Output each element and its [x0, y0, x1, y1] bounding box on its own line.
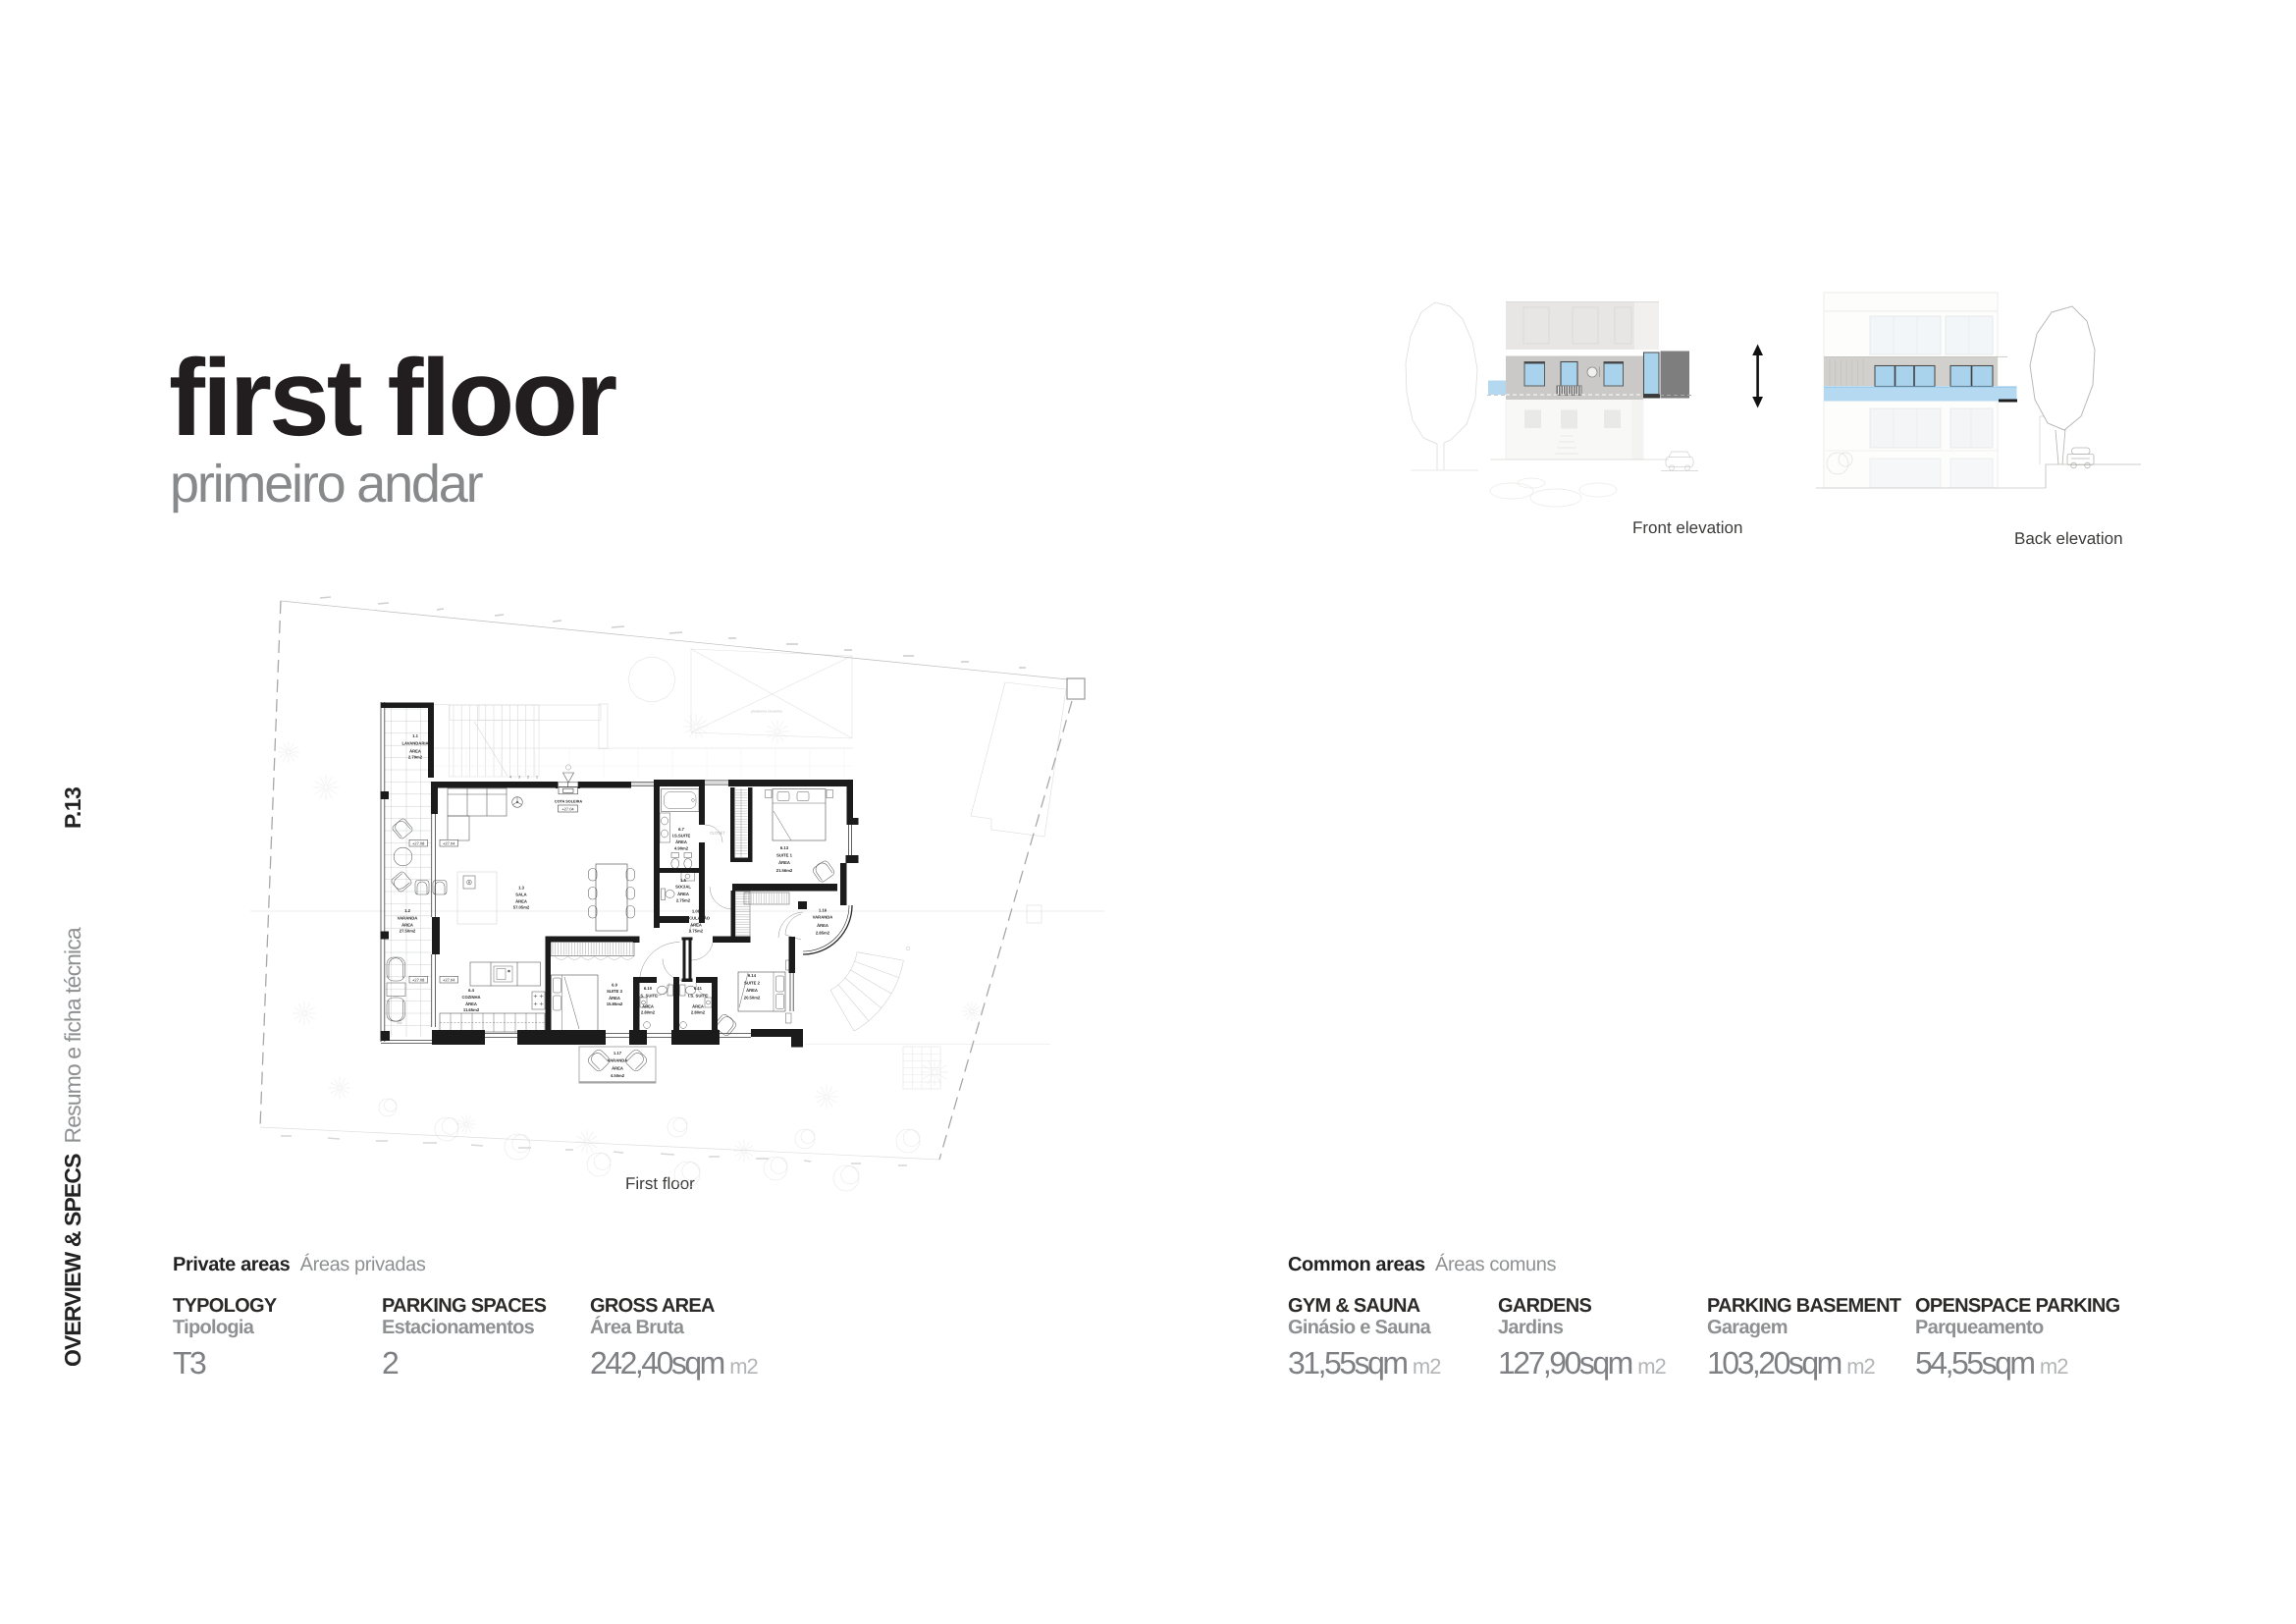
svg-text:6.11: 6.11	[694, 986, 703, 991]
svg-text:I.S.SUITE: I.S.SUITE	[672, 834, 691, 839]
svg-text:ÁREA: ÁREA	[675, 839, 687, 844]
svg-text:6.9: 6.9	[612, 983, 617, 988]
svg-text:I.S. SUITE: I.S. SUITE	[638, 994, 658, 999]
svg-text:11.65m2: 11.65m2	[463, 1007, 480, 1012]
svg-text:ÁREA: ÁREA	[746, 988, 758, 993]
svg-text:COZINHA: COZINHA	[461, 995, 480, 1000]
svg-text:4.50m2: 4.50m2	[611, 1073, 625, 1078]
svg-text:ÁREA: ÁREA	[401, 923, 413, 928]
svg-text:2.80m2: 2.80m2	[691, 1010, 706, 1015]
svg-text:ÁREA: ÁREA	[778, 860, 790, 865]
svg-text:+27.04: +27.04	[443, 977, 455, 982]
svg-text:SUITE 1: SUITE 1	[776, 853, 792, 858]
svg-text:2.85m2: 2.85m2	[816, 931, 830, 936]
svg-text:COTA SOLEIRA: COTA SOLEIRA	[555, 800, 583, 804]
svg-text:SALA: SALA	[515, 893, 526, 897]
svg-text:1.2: 1.2	[404, 908, 410, 913]
svg-text:SOCIAL: SOCIAL	[675, 885, 691, 890]
svg-text:2.80m2: 2.80m2	[641, 1010, 656, 1015]
svg-text:4 3 2 1: 4 3 2 1	[509, 776, 541, 780]
svg-text:CIRCULAÇÃO: CIRCULAÇÃO	[682, 916, 711, 921]
svg-text:ÁREA: ÁREA	[690, 923, 702, 928]
svg-text:SUITE 2: SUITE 2	[744, 981, 760, 986]
svg-text:1.3: 1.3	[518, 886, 524, 891]
svg-text:ÁREA: ÁREA	[515, 899, 527, 904]
svg-text:2.79m2: 2.79m2	[408, 755, 423, 760]
svg-text:292: 292	[397, 1021, 402, 1025]
svg-text:3.75m2: 3.75m2	[689, 929, 704, 934]
svg-text:ÁREA: ÁREA	[817, 923, 828, 928]
svg-text:ÁREA: ÁREA	[609, 996, 620, 1001]
svg-text:ÁREA: ÁREA	[409, 749, 421, 754]
svg-text:ÁREA: ÁREA	[612, 1066, 623, 1071]
svg-text:VARANDA: VARANDA	[398, 916, 418, 921]
svg-text:+27.04: +27.04	[561, 807, 574, 812]
svg-text:plataforma elevatória: plataforma elevatória	[751, 710, 782, 714]
svg-text:27.50m2: 27.50m2	[400, 929, 416, 934]
svg-text:57.05m2: 57.05m2	[513, 905, 530, 910]
svg-text:+27.08: +27.08	[412, 977, 425, 982]
svg-text:6.13: 6.13	[780, 845, 789, 850]
svg-text:1.17: 1.17	[614, 1051, 622, 1056]
svg-text:LAVANDARIA: LAVANDARIA	[401, 741, 428, 746]
svg-text:ÁREA: ÁREA	[465, 1001, 477, 1006]
svg-text:6.4: 6.4	[468, 988, 474, 993]
svg-text:I.S. SUITE: I.S. SUITE	[688, 994, 708, 999]
svg-text:4.90m2: 4.90m2	[674, 846, 689, 851]
svg-text:20.50m2: 20.50m2	[744, 996, 761, 1001]
svg-text:1.5: 1.5	[680, 878, 686, 883]
svg-text:VARANDA: VARANDA	[813, 915, 833, 920]
svg-text:9.14: 9.14	[748, 973, 757, 978]
svg-text:6.10: 6.10	[644, 986, 653, 991]
svg-text:CLOSET: CLOSET	[710, 832, 725, 836]
svg-text:+27.04: +27.04	[443, 840, 455, 845]
svg-text:1.16: 1.16	[819, 908, 828, 913]
svg-text:6.7: 6.7	[678, 827, 684, 832]
svg-text:ÁREA: ÁREA	[677, 892, 689, 896]
svg-text:ÁREA: ÁREA	[692, 1004, 704, 1009]
svg-text:ÁREA: ÁREA	[642, 1004, 654, 1009]
svg-text:+27.08: +27.08	[412, 840, 425, 845]
svg-text:2.75m2: 2.75m2	[676, 898, 691, 903]
svg-text:1.08: 1.08	[692, 909, 701, 914]
svg-text:SUITE 3: SUITE 3	[607, 989, 622, 994]
svg-text:15.85m2: 15.85m2	[607, 1001, 623, 1006]
svg-text:VARANDA: VARANDA	[608, 1058, 628, 1063]
svg-text:1.1: 1.1	[412, 733, 418, 738]
svg-text:21.56m2: 21.56m2	[776, 868, 793, 873]
